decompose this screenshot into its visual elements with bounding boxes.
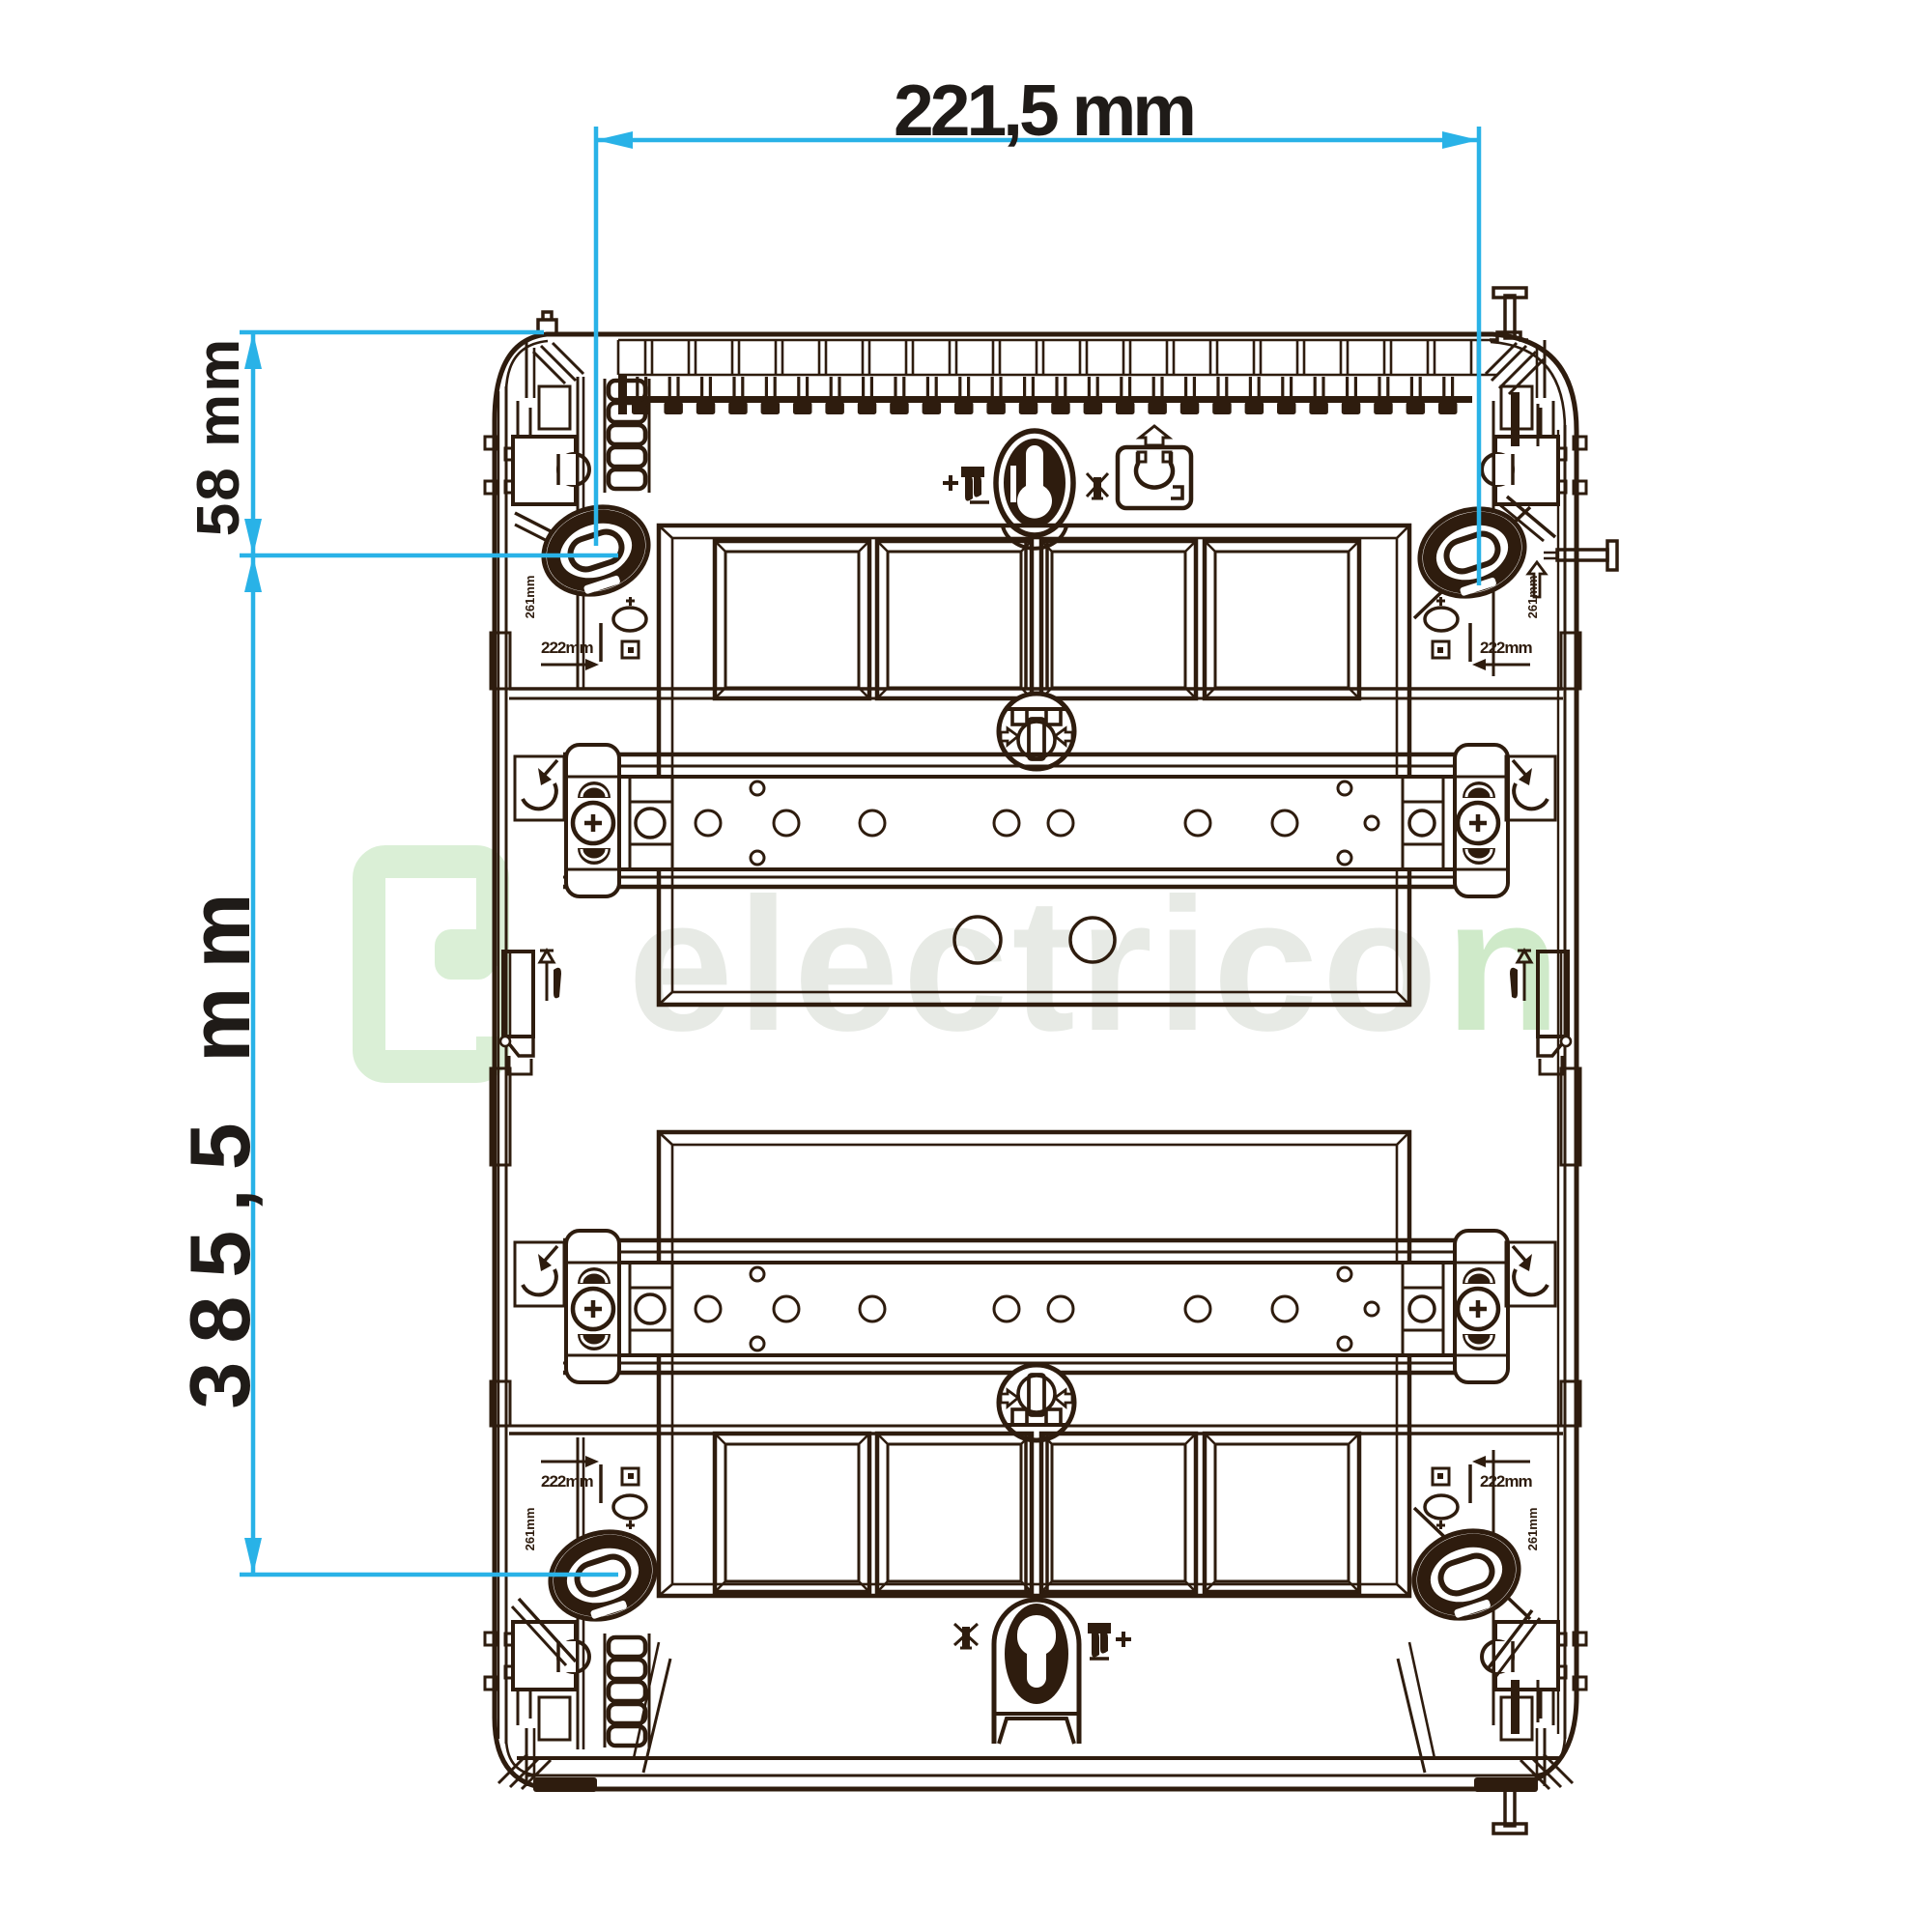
svg-text:261mm: 261mm [523, 576, 537, 619]
svg-text:58 mm: 58 mm [185, 337, 252, 536]
svg-text:261mm: 261mm [523, 1508, 537, 1551]
svg-text:222mm: 222mm [1480, 639, 1532, 657]
svg-text:222mm: 222mm [541, 639, 593, 657]
svg-text:385,5 mm: 385,5 mm [172, 874, 268, 1408]
svg-text:222mm: 222mm [1480, 1472, 1532, 1491]
svg-text:221,5 mm: 221,5 mm [894, 70, 1193, 151]
svg-text:261mm: 261mm [1525, 1508, 1540, 1551]
svg-text:electrico: electrico [628, 859, 1441, 1070]
svg-text:222mm: 222mm [541, 1472, 593, 1491]
